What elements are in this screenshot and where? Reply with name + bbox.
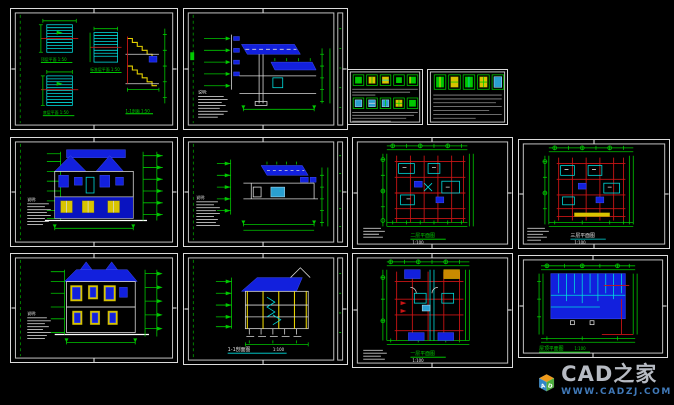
- stair-label-4: 1-1剖面 1:50: [125, 108, 150, 113]
- stair-label-1: 顶层平面 1:50: [41, 57, 67, 62]
- sheet-wall-section-detail: 说明:: [183, 8, 348, 130]
- window-diagrams-row1: [353, 75, 418, 86]
- sheet-scale: 1:100: [412, 240, 424, 245]
- notes-text-block: [27, 204, 51, 225]
- bottom-dimension: [245, 340, 308, 346]
- stair-plan-bottom: [41, 70, 78, 105]
- bottom-dimension: [67, 340, 136, 344]
- plan-walls: [557, 158, 626, 221]
- sheet-second-floor-plan: 二层平面图 1:100: [352, 137, 513, 249]
- schedule-table-lines: [433, 95, 501, 118]
- notes-text-block: [196, 202, 220, 226]
- stair-label-3: 底层平面 1:50: [43, 110, 69, 115]
- section-drawing: [241, 268, 310, 337]
- stair-plan-top: [39, 19, 78, 52]
- elevation-walls-windows: [55, 281, 149, 334]
- notes-text-block: [527, 228, 549, 240]
- right-level-marks: [145, 270, 163, 337]
- stair-label-2: 标准层平面 1:50: [90, 67, 120, 72]
- sheet-scale: 1:100: [412, 358, 424, 363]
- right-level-marks: [143, 152, 163, 221]
- sheet-window-schedule-1: [347, 69, 423, 125]
- sheet-rear-elevation: 说明:: [10, 253, 178, 363]
- roof-surface: [551, 274, 633, 335]
- window-diagrams-row2: [353, 98, 418, 109]
- sheet-scale: 1:100: [574, 346, 586, 351]
- sheet-section-1-1: 1-1剖面图 1:100: [183, 253, 348, 365]
- plan-fixtures: [399, 164, 460, 205]
- section-roof: [261, 162, 316, 183]
- sheet-scale: 1:100: [273, 347, 285, 352]
- cad-drawing-collage: 顶层平面 1:50 标准层平面 1:50 底层平面 1:50: [0, 0, 674, 405]
- notes-text-block: [27, 318, 51, 339]
- notes-text-block: [363, 350, 387, 359]
- stair-plan-mid: [90, 27, 121, 62]
- left-level-marks: [216, 278, 232, 329]
- notes-text-block: [363, 228, 385, 237]
- elevation-roof: [65, 262, 138, 282]
- stair-section: [125, 29, 166, 104]
- section-dimensions: [243, 48, 330, 111]
- sheet-front-elevation: 说明:: [10, 137, 178, 247]
- sheet-roof-plan: 屋顶平面图 1:100: [518, 255, 668, 358]
- section-roof-bands: [241, 44, 316, 70]
- notes-heading: 说明:: [27, 197, 36, 202]
- sheet-title: 屋顶平面图: [539, 346, 564, 352]
- schedule-table-lines-2: [352, 112, 418, 121]
- schedule-table-lines-1: [352, 89, 418, 95]
- logo-brand-text: CAD之家: [561, 362, 672, 386]
- sheet-first-floor-plan: 一层平面图 1:100: [352, 253, 513, 368]
- sheet-title: 一层平面图: [410, 351, 435, 357]
- window-diagrams-row: [434, 75, 503, 89]
- section-structure: [243, 183, 318, 199]
- sheet-window-schedule-2: [427, 69, 508, 125]
- sheet-third-floor-plan: 三层平面图 1:100: [518, 139, 670, 249]
- sheet-title: 1-1剖面图: [228, 346, 251, 353]
- sheet-stair-details: 顶层平面 1:50 标准层平面 1:50 底层平面 1:50: [10, 8, 178, 130]
- bottom-dimension: [55, 226, 134, 230]
- sheet-title: 二层平面图: [410, 233, 435, 239]
- sheet-scale: 1:100: [574, 240, 586, 245]
- notes-heading: 说明:: [198, 90, 207, 95]
- notes-text-block: [198, 97, 228, 118]
- sheet-title: 三层平面图: [570, 233, 595, 239]
- left-level-marks: [217, 160, 231, 215]
- plan-furniture: [401, 270, 460, 341]
- sheet-section-detail: 说明:: [183, 137, 348, 247]
- logo-website-url[interactable]: WWW.CADZJ.COM: [561, 387, 672, 397]
- cube-letter-d: D: [547, 383, 553, 390]
- section-level-marks: [204, 35, 239, 90]
- notes-heading: 说明:: [196, 195, 205, 200]
- notes-heading: 说明:: [27, 311, 36, 316]
- cad-cube-logo-icon: A D: [538, 362, 555, 404]
- left-dimension-lines: [51, 270, 65, 335]
- cadzj-watermark-logo: A D CAD之家 WWW.CADZJ.COM: [538, 362, 672, 404]
